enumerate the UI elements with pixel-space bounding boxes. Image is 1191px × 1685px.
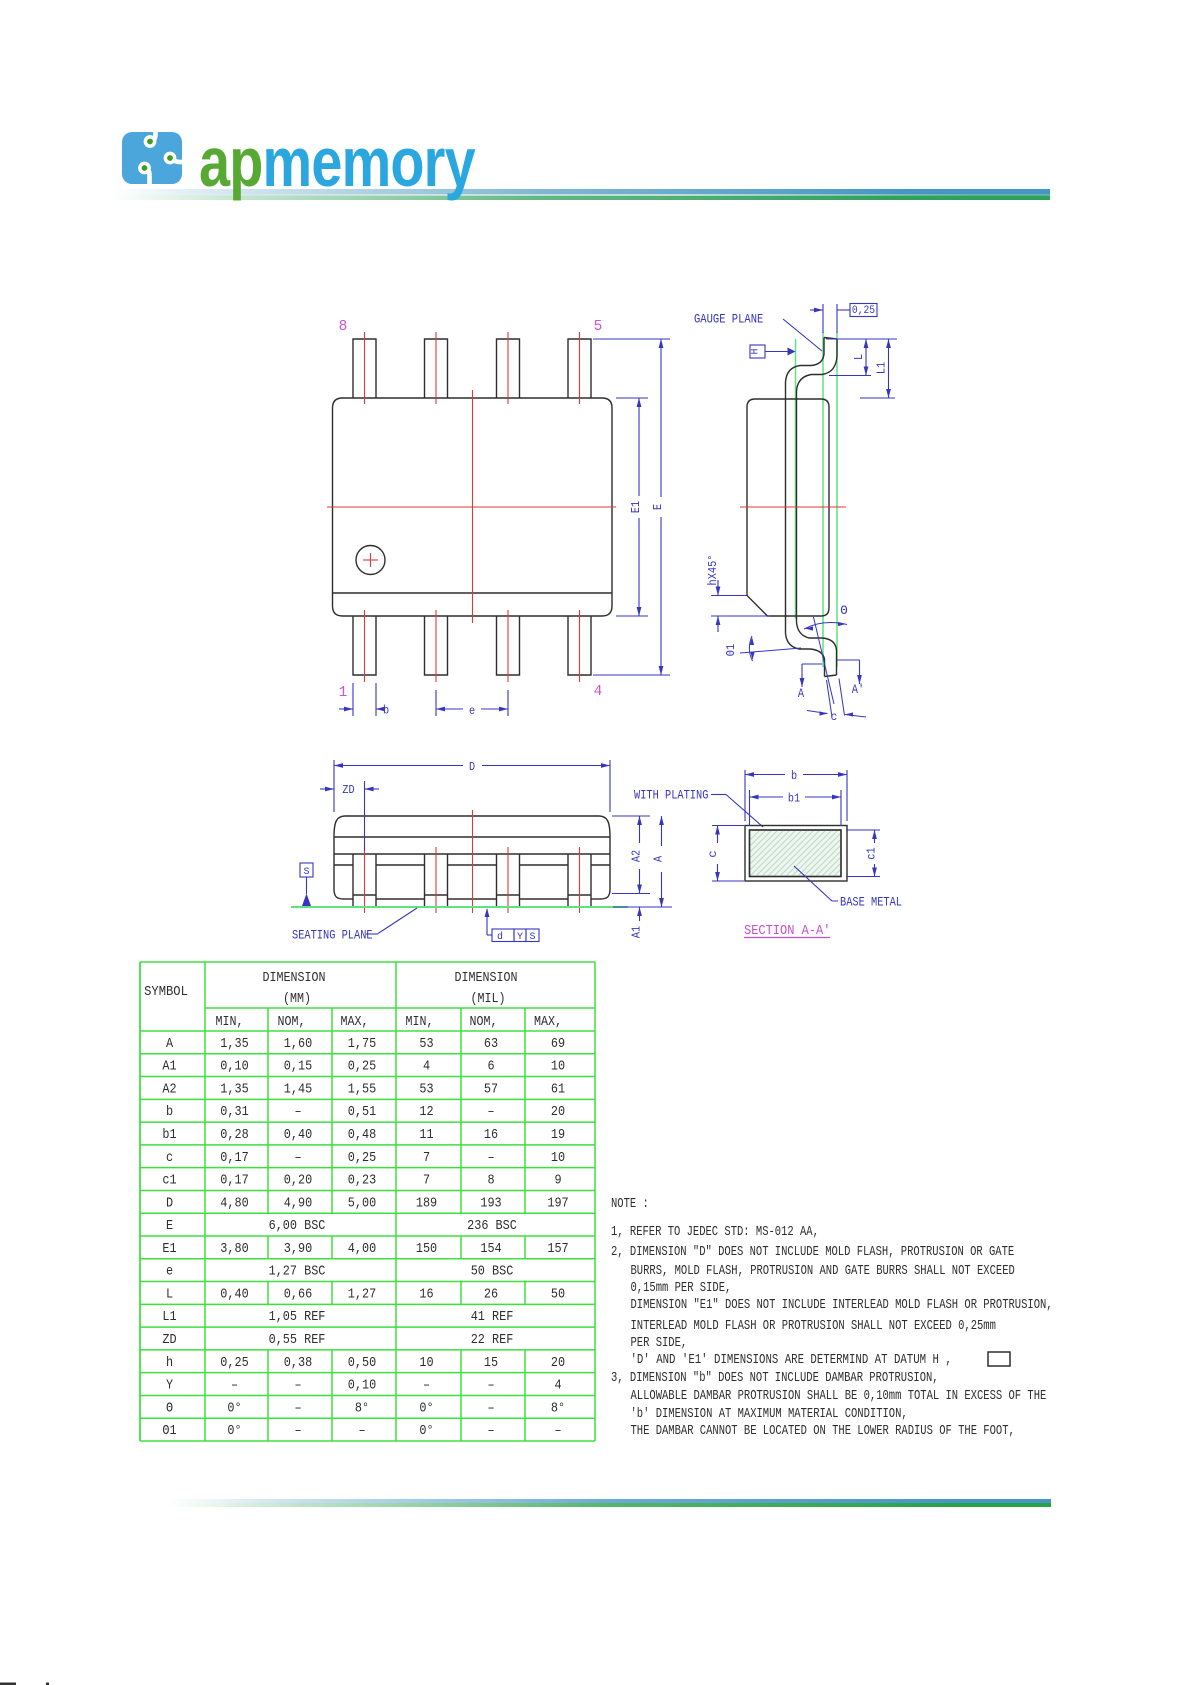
svg-text:NOM,: NOM, [278, 1014, 306, 1030]
svg-text:20: 20 [551, 1356, 565, 1371]
svg-text:9: 9 [554, 1174, 561, 1189]
svg-text:0,40: 0,40 [284, 1128, 312, 1143]
svg-text:E1: E1 [162, 1242, 176, 1257]
svg-text:0,31: 0,31 [220, 1105, 248, 1120]
svg-text:1,35: 1,35 [220, 1082, 248, 1097]
svg-text:ALLOWABLE DAMBAR PROTRUSION SH: ALLOWABLE DAMBAR PROTRUSION SHALL BE 0,1… [631, 1389, 1047, 1404]
svg-text:b: b [166, 1105, 173, 1120]
svg-text:D: D [166, 1196, 173, 1211]
svg-text:0,10: 0,10 [348, 1379, 376, 1394]
svg-text:0°: 0° [227, 1401, 241, 1416]
svg-text:8°: 8° [551, 1401, 565, 1416]
svg-text:0°: 0° [419, 1401, 433, 1416]
svg-text:(MIL): (MIL) [471, 991, 506, 1007]
svg-text:MAX,: MAX, [341, 1014, 369, 1030]
svg-text:e: e [469, 705, 475, 718]
svg-text:L1: L1 [162, 1310, 176, 1325]
svg-text:–: – [554, 1424, 561, 1439]
svg-text:–: – [294, 1424, 301, 1439]
svg-text:189: 189 [416, 1196, 437, 1211]
svg-text:Θ: Θ [840, 604, 848, 618]
svg-text:–: – [294, 1105, 301, 1120]
svg-text:ZD: ZD [162, 1333, 176, 1348]
svg-text:A: A [653, 856, 666, 862]
svg-text:E1: E1 [630, 501, 643, 513]
svg-text:16: 16 [484, 1128, 498, 1143]
svg-text:0°: 0° [419, 1424, 433, 1439]
svg-text:–: – [294, 1151, 301, 1166]
svg-text:16: 16 [419, 1287, 433, 1302]
svg-text:3, DIMENSION "b" DOES NOT INCL: 3, DIMENSION "b" DOES NOT INCLUDE DAMBAR… [611, 1371, 939, 1386]
svg-text:0,17: 0,17 [220, 1151, 248, 1166]
svg-text:SEATING PLANE: SEATING PLANE [292, 929, 373, 943]
svg-text:0,25: 0,25 [220, 1356, 248, 1371]
svg-text:1: 1 [339, 685, 348, 701]
svg-text:c: c [831, 711, 838, 724]
svg-text:1,35: 1,35 [220, 1037, 248, 1052]
svg-text:E: E [652, 504, 665, 510]
svg-text:L: L [166, 1287, 173, 1302]
svg-text:41 REF: 41 REF [471, 1310, 514, 1325]
svg-text:1,60: 1,60 [284, 1037, 312, 1052]
svg-text:0,66: 0,66 [284, 1287, 312, 1302]
svg-text:0,28: 0,28 [220, 1128, 248, 1143]
svg-text:0,50: 0,50 [348, 1356, 376, 1371]
svg-text:0,17: 0,17 [220, 1174, 248, 1189]
svg-text:61: 61 [551, 1082, 565, 1097]
svg-text:ZD: ZD [342, 784, 354, 797]
svg-text:–: – [358, 1424, 365, 1439]
svg-text:69: 69 [551, 1037, 565, 1052]
svg-text:Y: Y [517, 932, 523, 943]
svg-text:–: – [294, 1401, 301, 1416]
svg-text:6,00 BSC: 6,00 BSC [269, 1219, 326, 1234]
svg-text:d: d [497, 931, 503, 943]
svg-text:hX45°: hX45° [706, 555, 720, 586]
svg-text:4: 4 [554, 1379, 561, 1394]
svg-text:L: L [853, 354, 866, 360]
svg-text:4: 4 [594, 684, 603, 700]
svg-text:A: A [798, 687, 805, 701]
svg-text:0,48: 0,48 [348, 1128, 376, 1143]
svg-text:57: 57 [484, 1082, 498, 1097]
svg-text:b1: b1 [788, 793, 800, 806]
svg-text:–: – [487, 1105, 494, 1120]
svg-text:0,38: 0,38 [284, 1356, 312, 1371]
svg-text:BURRS, MOLD FLASH, PROTRUSION: BURRS, MOLD FLASH, PROTRUSION AND GATE B… [631, 1264, 1015, 1279]
svg-text:10: 10 [551, 1060, 565, 1075]
svg-text:A2: A2 [631, 850, 644, 862]
svg-text:DIMENSION "E1" DOES NOT INCLUD: DIMENSION "E1" DOES NOT INCLUDE INTERLEA… [631, 1298, 1053, 1313]
svg-text:26: 26 [484, 1287, 498, 1302]
svg-text:e: e [166, 1265, 173, 1280]
svg-text:150: 150 [416, 1242, 437, 1257]
svg-text:MIN,: MIN, [216, 1014, 244, 1030]
svg-text:1, REFER TO JEDEC STD: MS-012: 1, REFER TO JEDEC STD: MS-012 AA, [611, 1225, 819, 1240]
svg-text:1,27: 1,27 [348, 1287, 376, 1302]
svg-text:c: c [166, 1151, 173, 1166]
svg-text:10: 10 [551, 1151, 565, 1166]
svg-text:22 REF: 22 REF [471, 1333, 514, 1348]
svg-text:4,00: 4,00 [348, 1242, 376, 1257]
svg-text:1,27 BSC: 1,27 BSC [269, 1265, 326, 1280]
svg-text:157: 157 [547, 1242, 568, 1257]
svg-text:Θ1: Θ1 [162, 1424, 176, 1439]
svg-text:'D' AND 'E1' DIMENSIONS ARE DE: 'D' AND 'E1' DIMENSIONS ARE DETERMIND AT… [631, 1353, 952, 1368]
svg-text:0,23: 0,23 [348, 1174, 376, 1189]
svg-text:154: 154 [480, 1242, 501, 1257]
svg-text:–: – [294, 1379, 301, 1394]
svg-text:E: E [166, 1219, 173, 1234]
svg-text:11: 11 [419, 1128, 433, 1143]
svg-text:8: 8 [487, 1174, 494, 1189]
svg-text:PER SIDE,: PER SIDE, [631, 1336, 688, 1351]
svg-text:10: 10 [419, 1356, 433, 1371]
svg-text:D: D [469, 761, 475, 774]
svg-text:0,51: 0,51 [348, 1105, 376, 1120]
svg-text:63: 63 [484, 1037, 498, 1052]
svg-text:A2: A2 [162, 1082, 176, 1097]
svg-text:0,55 REF: 0,55 REF [269, 1333, 326, 1348]
svg-text:SYMBOL: SYMBOL [144, 984, 188, 1000]
svg-text:MAX,: MAX, [534, 1014, 562, 1030]
svg-text:L1: L1 [876, 362, 889, 374]
svg-text:0,25: 0,25 [348, 1060, 376, 1075]
svg-text:'b' DIMENSION AT MAXIMUM MATER: 'b' DIMENSION AT MAXIMUM MATERIAL CONDIT… [631, 1407, 908, 1422]
svg-text:53: 53 [419, 1037, 433, 1052]
svg-text:197: 197 [547, 1196, 568, 1211]
svg-text:S: S [304, 866, 310, 878]
svg-text:236 BSC: 236 BSC [467, 1219, 517, 1234]
svg-text:5,00: 5,00 [348, 1196, 376, 1211]
svg-text:MIN,: MIN, [406, 1014, 434, 1030]
svg-text:4,80: 4,80 [220, 1196, 248, 1211]
svg-text:A1: A1 [631, 926, 644, 938]
svg-text:S: S [529, 932, 535, 943]
svg-text:0,25: 0,25 [852, 305, 875, 317]
svg-text:–: – [423, 1379, 430, 1394]
svg-text:Θ1: Θ1 [724, 644, 738, 656]
svg-text:0,25: 0,25 [348, 1151, 376, 1166]
svg-text:DIMENSION: DIMENSION [263, 970, 326, 986]
svg-text:–: – [487, 1424, 494, 1439]
svg-text:8°: 8° [355, 1401, 369, 1416]
svg-text:5: 5 [594, 319, 603, 335]
svg-text:193: 193 [480, 1196, 501, 1211]
svg-text:7: 7 [423, 1174, 430, 1189]
svg-text:NOM,: NOM, [470, 1014, 498, 1030]
svg-text:0,10: 0,10 [220, 1060, 248, 1075]
svg-text:(MM): (MM) [283, 991, 311, 1007]
svg-text:6: 6 [487, 1060, 494, 1075]
svg-text:20: 20 [551, 1105, 565, 1120]
svg-text:A: A [166, 1037, 174, 1052]
svg-text:50 BSC: 50 BSC [471, 1265, 514, 1280]
svg-text:b: b [383, 705, 389, 718]
svg-text:–: – [487, 1401, 494, 1416]
svg-text:b: b [791, 770, 797, 783]
svg-text:3,80: 3,80 [220, 1242, 248, 1257]
svg-text:h: h [166, 1356, 173, 1371]
svg-text:c1: c1 [866, 847, 879, 859]
svg-text:BASE METAL: BASE METAL [840, 896, 902, 910]
svg-text:0,15: 0,15 [284, 1060, 312, 1075]
svg-text:8: 8 [339, 319, 348, 335]
svg-text:SECTION A-A': SECTION A-A' [744, 923, 830, 939]
svg-text:3,90: 3,90 [284, 1242, 312, 1257]
svg-text:0,20: 0,20 [284, 1174, 312, 1189]
svg-text:GAUGE PLANE: GAUGE PLANE [694, 313, 763, 327]
svg-text:7: 7 [423, 1151, 430, 1166]
svg-text:1,75: 1,75 [348, 1037, 376, 1052]
svg-text:15: 15 [484, 1356, 498, 1371]
svg-text:19: 19 [551, 1128, 565, 1143]
svg-text:DIMENSION: DIMENSION [455, 970, 518, 986]
svg-text:0,40: 0,40 [220, 1287, 248, 1302]
svg-text:–: – [487, 1151, 494, 1166]
svg-text:1,45: 1,45 [284, 1082, 312, 1097]
svg-text:c1: c1 [162, 1174, 176, 1189]
svg-text:1,55: 1,55 [348, 1082, 376, 1097]
svg-text:–: – [231, 1379, 238, 1394]
svg-text:–: – [487, 1379, 494, 1394]
svg-text:Y: Y [166, 1379, 173, 1394]
svg-text:THE DAMBAR CANNOT BE LOCATED O: THE DAMBAR CANNOT BE LOCATED ON THE LOWE… [631, 1424, 1015, 1439]
svg-text:2, DIMENSION "D" DOES NOT INCL: 2, DIMENSION "D" DOES NOT INCLUDE MOLD F… [611, 1245, 1014, 1260]
svg-text:WITH PLATING: WITH PLATING [634, 789, 708, 803]
svg-text:NOTE :: NOTE : [611, 1197, 649, 1212]
svg-text:4: 4 [423, 1060, 430, 1075]
svg-text:53: 53 [419, 1082, 433, 1097]
svg-text:4,90: 4,90 [284, 1196, 312, 1211]
svg-text:A': A' [852, 683, 864, 697]
svg-text:0°: 0° [227, 1424, 241, 1439]
svg-text:12: 12 [419, 1105, 433, 1120]
svg-text:Θ: Θ [166, 1401, 173, 1416]
svg-text:1,05 REF: 1,05 REF [269, 1310, 326, 1325]
svg-text:c: c [706, 850, 720, 857]
svg-text:INTERLEAD MOLD FLASH OR PROTRU: INTERLEAD MOLD FLASH OR PROTRUSION SHALL… [631, 1319, 996, 1334]
svg-text:50: 50 [551, 1287, 565, 1302]
svg-text:b1: b1 [162, 1128, 176, 1143]
svg-text:A1: A1 [162, 1060, 176, 1075]
svg-text:0,15mm PER SIDE,: 0,15mm PER SIDE, [631, 1281, 732, 1296]
svg-text:H: H [751, 349, 762, 355]
